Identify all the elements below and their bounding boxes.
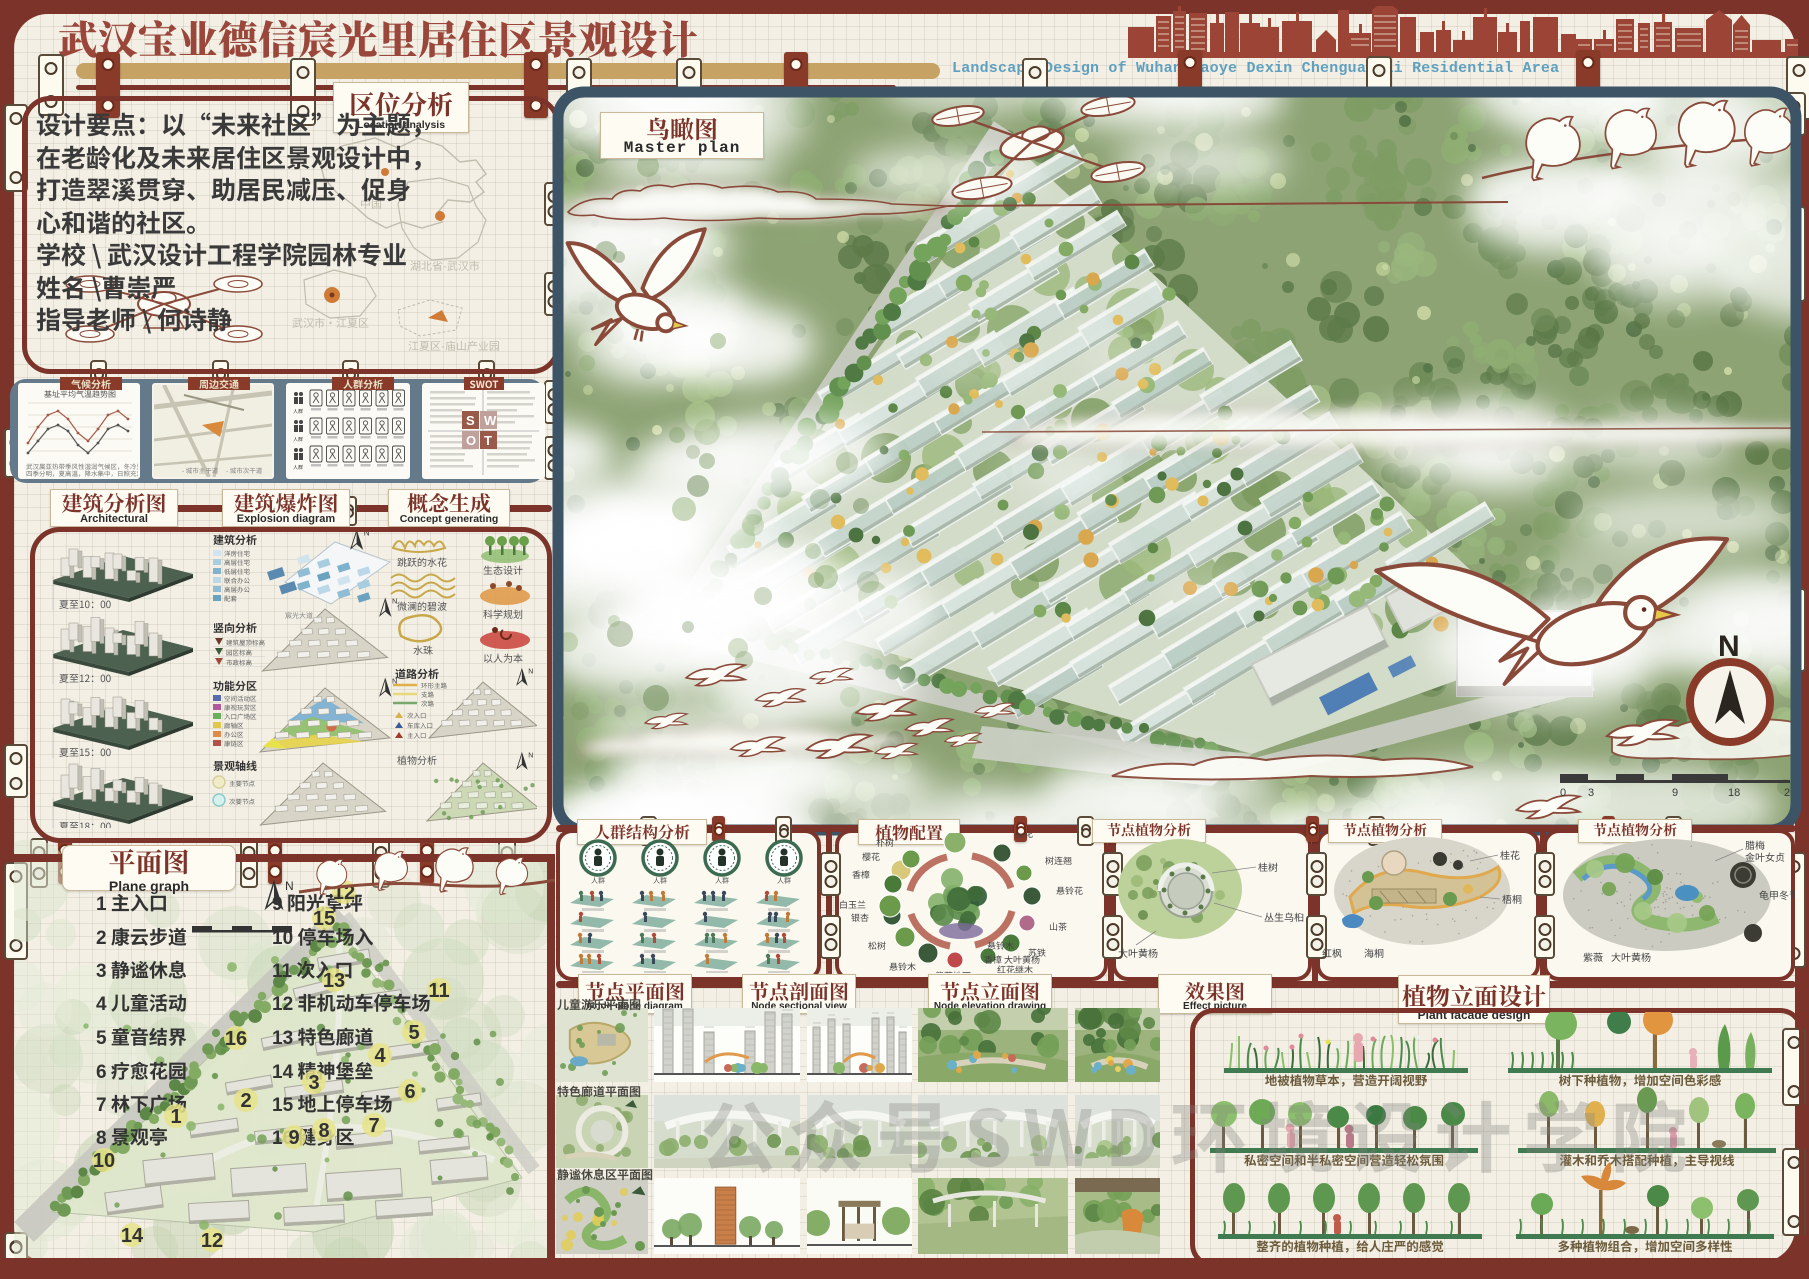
svg-text:11: 11	[428, 980, 449, 1002]
svg-text:植物分析: 植物分析	[397, 752, 437, 767]
svg-text:N: N	[285, 879, 294, 893]
svg-text:宸光大道: 宸光大道	[285, 611, 313, 621]
svg-text:人群: 人群	[653, 876, 667, 886]
svg-text:生态设计: 生态设计	[483, 562, 523, 577]
svg-text:银杏: 银杏	[851, 911, 869, 924]
svg-text:人群: 人群	[715, 876, 729, 886]
svg-text:园区标高: 园区标高	[226, 647, 253, 657]
svg-text:2 康云步道: 2 康云步道	[96, 923, 187, 950]
svg-text:建筑分析: 建筑分析	[213, 532, 257, 548]
svg-text:桂树: 桂树	[1258, 859, 1278, 874]
svg-text:0: 0	[1560, 787, 1566, 799]
svg-text:15: 15	[313, 908, 335, 930]
svg-text:3 静谧休息: 3 静谧休息	[96, 956, 187, 983]
svg-text:整齐的植物种植，给人庄严的感觉: 整齐的植物种植，给人庄严的感觉	[1256, 1236, 1444, 1255]
svg-text:N: N	[364, 532, 370, 538]
svg-text:4 儿童活动: 4 儿童活动	[96, 989, 187, 1016]
svg-text:大叶黄杨: 大叶黄杨	[1118, 945, 1158, 960]
svg-text:松树: 松树	[868, 939, 886, 952]
svg-text:跳跃的水花: 跳跃的水花	[397, 554, 447, 569]
svg-text:10: 10	[93, 1150, 115, 1172]
svg-text:9: 9	[1672, 787, 1678, 799]
svg-text:江夏区-庙山产业园: 江夏区-庙山产业园	[408, 338, 500, 354]
svg-text:13: 13	[323, 970, 345, 992]
svg-text:桂花: 桂花	[1500, 847, 1520, 862]
svg-text:人群: 人群	[293, 436, 303, 443]
svg-text:1: 1	[170, 1106, 181, 1128]
svg-text:以人为本: 以人为本	[483, 650, 523, 665]
svg-text:配套: 配套	[224, 593, 238, 603]
svg-text:功能分区: 功能分区	[213, 678, 257, 694]
svg-text:白玉兰: 白玉兰	[839, 898, 866, 911]
svg-text:香樟 大叶黄杨: 香樟 大叶黄杨	[984, 953, 1040, 966]
svg-text:15 地上停车场: 15 地上停车场	[272, 1090, 392, 1117]
svg-text:科学规划: 科学规划	[483, 606, 523, 621]
svg-text:- 城市主干道: - 城市主干道	[182, 465, 219, 475]
svg-text:多种植物组合，增加空间多样性: 多种植物组合，增加空间多样性	[1557, 1236, 1733, 1255]
svg-text:主入口: 主入口	[407, 730, 427, 740]
svg-text:N: N	[528, 752, 533, 759]
svg-text:2: 2	[240, 1090, 251, 1112]
svg-text:悬铃木: 悬铃木	[889, 960, 916, 973]
svg-text:康链区: 康链区	[224, 738, 244, 748]
svg-text:市政标高: 市政标高	[226, 657, 253, 667]
svg-text:人群: 人群	[293, 408, 303, 415]
svg-text:悬铃花: 悬铃花	[1056, 884, 1083, 897]
svg-text:次要节点: 次要节点	[229, 796, 256, 806]
svg-text:N: N	[528, 668, 533, 675]
svg-text:6 疗愈花园: 6 疗愈花园	[96, 1057, 187, 1084]
svg-text:6: 6	[404, 1081, 415, 1103]
svg-text:次路: 次路	[421, 698, 435, 708]
svg-text:建筑屋顶标高: 建筑屋顶标高	[226, 637, 266, 647]
svg-text:5: 5	[408, 1022, 419, 1044]
svg-text:3: 3	[1588, 787, 1594, 799]
svg-text:金叶女贞: 金叶女贞	[1745, 849, 1785, 864]
svg-text:水珠: 水珠	[413, 642, 433, 657]
svg-text:景观轴线: 景观轴线	[213, 758, 257, 774]
svg-text:夏至10：00: 夏至10：00	[59, 596, 112, 611]
svg-text:梧桐: 梧桐	[1502, 891, 1522, 906]
svg-text:7: 7	[368, 1115, 379, 1137]
svg-text:人群: 人群	[591, 876, 605, 886]
svg-text:夏至15：00: 夏至15：00	[59, 744, 112, 759]
svg-text:夏至18：00: 夏至18：00	[59, 818, 112, 828]
svg-text:树连翘: 树连翘	[1045, 854, 1072, 867]
svg-text:人群: 人群	[777, 876, 791, 886]
svg-text:人群: 人群	[293, 464, 303, 471]
svg-text:14: 14	[121, 1225, 144, 1247]
svg-text:12: 12	[201, 1230, 223, 1252]
svg-text:S: S	[466, 413, 475, 428]
svg-text:四季分明，夏高温，降水集中，日照充足: 四季分明，夏高温，降水集中，日照充足	[26, 468, 138, 477]
svg-text:8: 8	[318, 1120, 329, 1142]
svg-text:红枫: 红枫	[1322, 945, 1342, 960]
svg-text:樱花: 樱花	[862, 850, 880, 863]
svg-text:丛生乌桕: 丛生乌桕	[1264, 909, 1304, 924]
svg-text:12 非机动车停车场: 12 非机动车停车场	[272, 989, 430, 1016]
svg-text:大叶黄杨: 大叶黄杨	[1611, 949, 1651, 964]
svg-text:次入口: 次入口	[407, 710, 427, 720]
svg-text:紫薇: 紫薇	[1583, 949, 1603, 964]
svg-text:海桐: 海桐	[1364, 945, 1384, 960]
svg-text:9: 9	[288, 1127, 299, 1149]
svg-text:3: 3	[308, 1072, 319, 1094]
svg-text:山茶: 山茶	[1049, 920, 1067, 933]
svg-text:微澜的碧波: 微澜的碧波	[397, 598, 447, 613]
svg-text:悬铃木: 悬铃木	[987, 939, 1014, 952]
svg-text:18: 18	[1728, 787, 1740, 799]
svg-text:4: 4	[374, 1045, 386, 1067]
svg-text:5 童音结界: 5 童音结界	[96, 1023, 187, 1050]
svg-text:桂花: 桂花	[1015, 833, 1033, 840]
svg-text:竖向分析: 竖向分析	[213, 620, 257, 636]
svg-text:N: N	[1718, 630, 1740, 663]
svg-text:8 景观亭: 8 景观亭	[96, 1123, 168, 1150]
svg-text:O: O	[466, 433, 476, 448]
svg-text:夏至12：00: 夏至12：00	[59, 670, 112, 685]
svg-text:T: T	[484, 433, 492, 448]
svg-text:香樟: 香樟	[852, 868, 870, 881]
svg-text:龟甲冬青: 龟甲冬青	[1759, 887, 1795, 902]
svg-text:13 特色廊道: 13 特色廊道	[272, 1023, 373, 1050]
svg-text:主要节点: 主要节点	[229, 778, 256, 788]
svg-text:W: W	[484, 413, 497, 428]
svg-text:车库入口: 车库入口	[407, 720, 433, 730]
svg-text:- 城市次干道: - 城市次干道	[226, 465, 263, 475]
svg-text:朴树: 朴树	[876, 836, 894, 849]
svg-text:16: 16	[225, 1028, 247, 1050]
svg-text:紫花地丁: 紫花地丁	[935, 969, 971, 973]
